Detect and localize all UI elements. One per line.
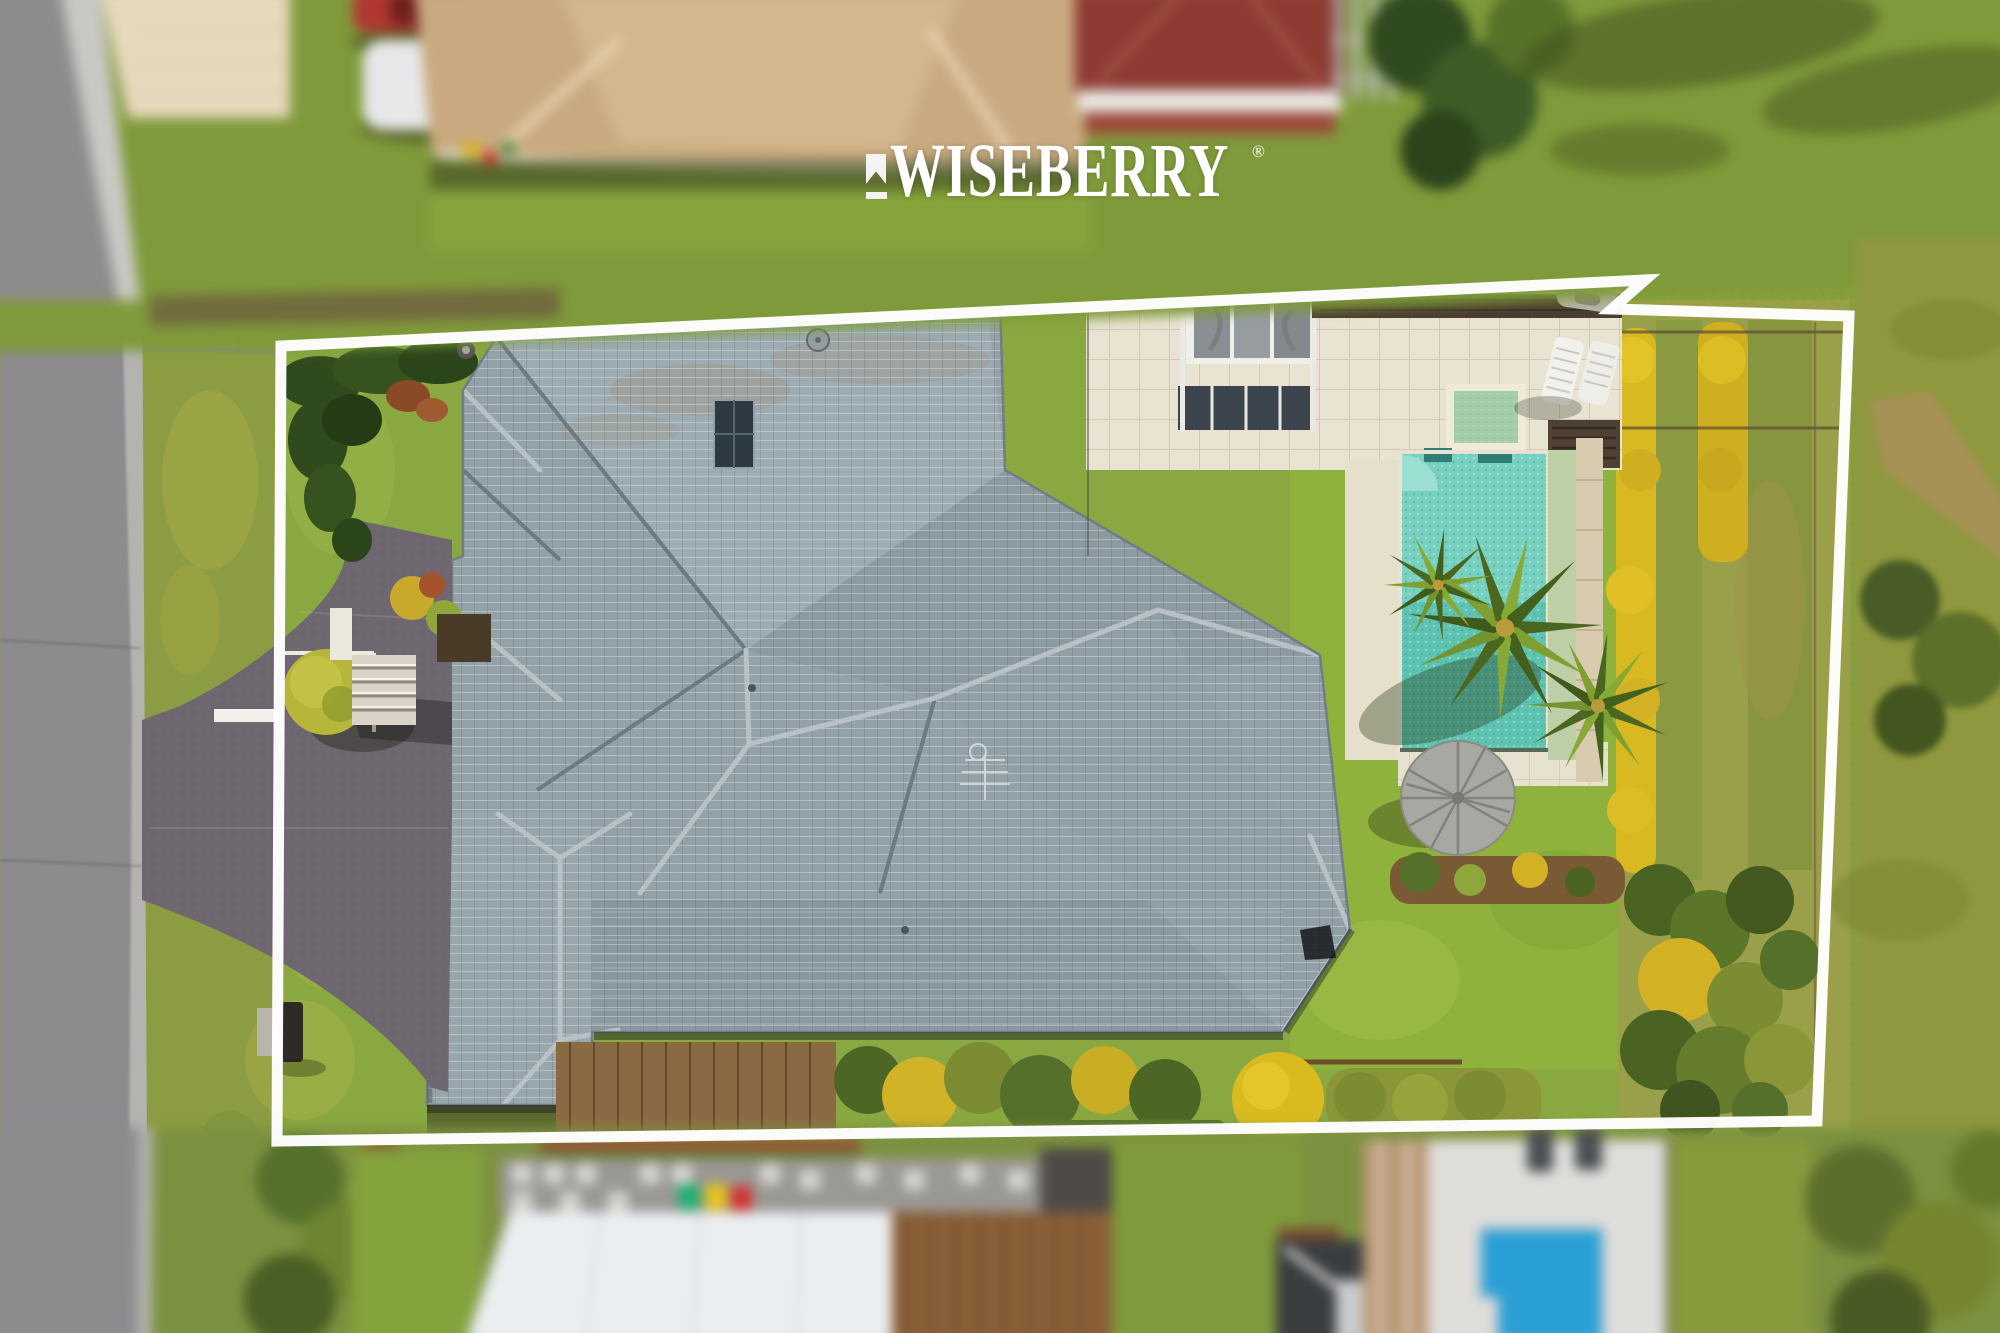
pool-wet-edge [1548, 450, 1576, 760]
bin-red [731, 1186, 752, 1211]
registered-mark: ® [1252, 142, 1265, 162]
neighbour-pool-area [1428, 1128, 1668, 1333]
red-roof-house [1075, 0, 1345, 134]
neighbour-pool [1480, 1228, 1603, 1333]
solar-panel [714, 400, 754, 468]
neighbour-lounger [1575, 1128, 1602, 1170]
entry-court [437, 614, 491, 662]
wheelie-bins [678, 1184, 752, 1211]
timber-deck [556, 1042, 836, 1134]
white-roof-building [466, 1212, 892, 1333]
bin-green [678, 1184, 700, 1210]
wiseberry-watermark: WISEBERRY ® [866, 140, 1361, 216]
watermark-brand-text: WISEBERRY [890, 140, 1229, 202]
neighbour-pavers [100, 0, 290, 118]
neighbour-lounger [1527, 1128, 1553, 1172]
front-steps [352, 655, 416, 725]
street-steps [214, 709, 278, 722]
roof-vent [748, 684, 756, 692]
satellite-dish-icon [807, 329, 829, 351]
bin-yellow [705, 1184, 727, 1210]
neighbour-terrace [500, 1158, 1108, 1216]
bottom-neighbourhood [0, 1128, 2000, 1333]
planter [330, 608, 352, 660]
ribbon-flag-icon [866, 154, 890, 216]
side-garden [1606, 300, 1850, 1140]
aerial-photo: WISEBERRY ® [0, 0, 2000, 1333]
dark-roof-house [1276, 1228, 1368, 1333]
alfresco [1178, 294, 1316, 432]
spa [1446, 384, 1526, 450]
